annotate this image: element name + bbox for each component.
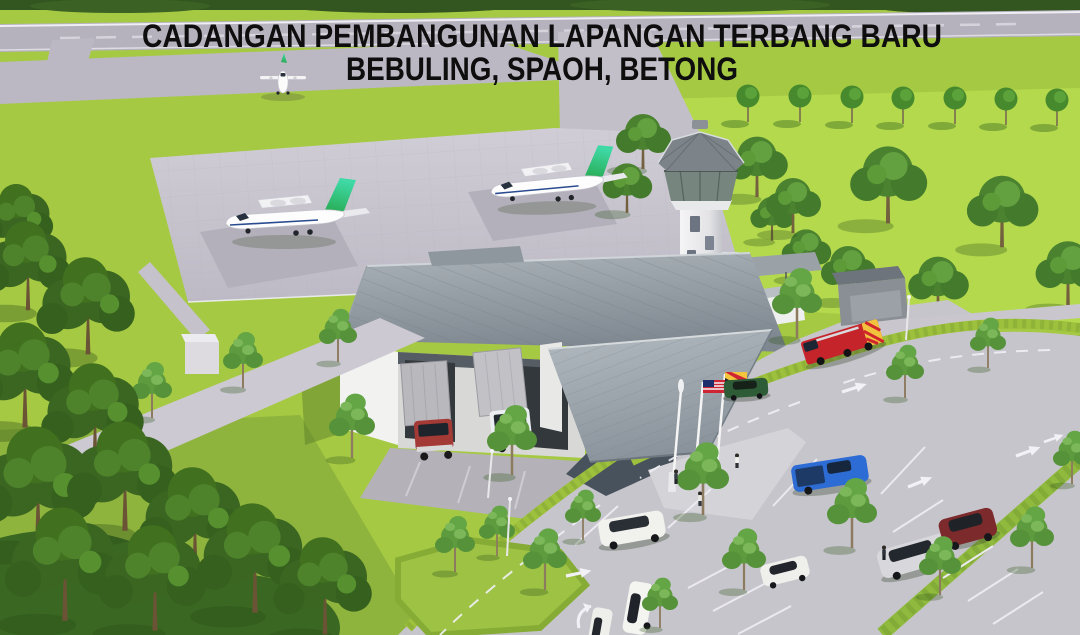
- title-line-2: BEBULING, SPAOH, BETONG: [346, 51, 738, 87]
- kiosk: [181, 334, 219, 374]
- airport-aerial-rendering: CADANGAN PEMBANGUNAN LAPANGAN TERBANG BA…: [0, 0, 1080, 635]
- tower-cab-glass: [664, 170, 738, 201]
- tower-cab-sill: [670, 200, 732, 210]
- title-line-1: CADANGAN PEMBANGUNAN LAPANGAN TERBANG BA…: [142, 18, 942, 54]
- fire-station: [832, 266, 908, 326]
- malaysia-flag: [703, 380, 725, 393]
